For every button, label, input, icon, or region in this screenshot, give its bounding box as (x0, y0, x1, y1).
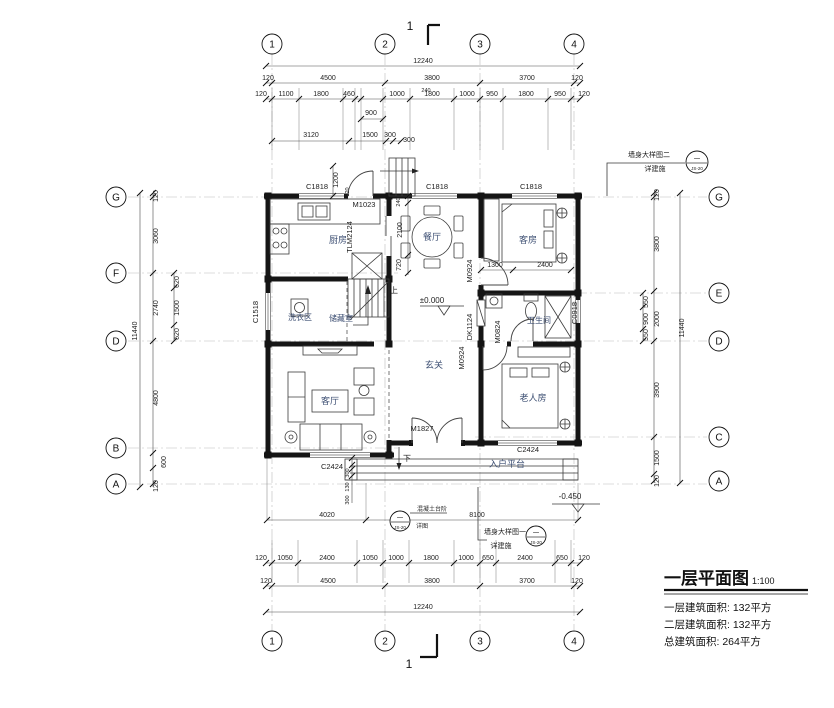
title-block: 一层平面图 1:100 一层建筑面积: 132平方 二层建筑面积: 132平方 … (664, 569, 808, 648)
detail-tag: JS-20 (394, 525, 406, 530)
area-line-2: 二层建筑面积: 132平方 (664, 618, 771, 631)
dim: 120 (255, 555, 267, 562)
dim: 1800 (313, 91, 329, 98)
axis-col-4-bottom: 4 (571, 637, 577, 648)
detail-tag: JS-20 (530, 540, 542, 545)
guest-room-set (484, 199, 567, 263)
dim: 2100 (397, 222, 404, 238)
dim: 1300 (487, 262, 503, 269)
dim: 1000 (388, 555, 404, 562)
axis-row-C-right: C (715, 433, 722, 444)
dim: 4800 (153, 390, 160, 406)
dim: 120 (571, 75, 583, 82)
dim: 8100 (469, 512, 485, 519)
dim: 620 (174, 276, 181, 288)
dim: 4500 (320, 578, 336, 585)
dim: 620 (174, 328, 181, 340)
level-minus: -0.450 (559, 492, 582, 501)
room-foyer: 玄关 (425, 359, 443, 370)
window-c1818-c (512, 193, 557, 199)
dim: 3800 (654, 236, 661, 252)
dim: 120 (345, 187, 351, 196)
axis-col-3-top: 3 (477, 40, 483, 51)
window-c1518 (265, 293, 271, 330)
level-zero: ±0.000 (420, 296, 445, 305)
dim: 120 (578, 555, 590, 562)
floor-plan-drawing: 1 1 1 2 3 4 1 2 3 4 G F D B A G E D C A … (0, 0, 834, 708)
axis-col-2-bottom: 2 (382, 637, 388, 648)
dim: 1000 (458, 555, 474, 562)
kitchen-fixtures (270, 199, 382, 279)
label-dk1124: DK1124 (465, 314, 474, 341)
dim: 3900 (654, 382, 661, 398)
label-c2424-b: C2424 (517, 445, 539, 454)
label-c1818-a: C1818 (306, 182, 328, 191)
note-wall-detail-2-line2: 详建施 (645, 164, 666, 173)
stair-down-label: 下 (403, 454, 411, 463)
dim: 2000 (654, 311, 661, 327)
dim: 3060 (153, 228, 160, 244)
dim: 120 (153, 190, 160, 202)
room-kitchen: 厨房 (329, 234, 347, 245)
dim: 1200 (333, 172, 340, 188)
label-m0924-b: M0924 (457, 347, 466, 370)
dim: 1500 (362, 132, 378, 139)
dim: 4020 (319, 512, 335, 519)
room-platform: 入户平台 (489, 458, 525, 469)
exterior-side-steps (380, 158, 419, 196)
dim: 120 (262, 75, 274, 82)
axis-col-1-top: 1 (269, 40, 275, 51)
section-number-bottom: 1 (406, 657, 413, 671)
dim: 4500 (320, 75, 336, 82)
dim: 950 (486, 91, 498, 98)
label-c1818-c: C1818 (520, 182, 542, 191)
dim: 120 (260, 578, 272, 585)
dim: 1000 (389, 91, 405, 98)
axis-row-F-left: F (113, 269, 119, 280)
stair-up-label: 上 (390, 286, 398, 295)
label-c0918: C0918 (570, 302, 579, 324)
dim: 3800 (424, 578, 440, 585)
axis-col-3-bottom: 3 (477, 637, 483, 648)
label-m1023: M1023 (353, 200, 376, 209)
axis-row-G-left: G (112, 193, 120, 204)
dim: 130 (345, 482, 351, 491)
dim: 120 (255, 91, 267, 98)
note-wall-detail-1-line2: 详建施 (491, 541, 512, 550)
elder-wardrobe (518, 347, 570, 357)
room-elder: 老人房 (519, 392, 546, 403)
dim: 1800 (423, 555, 439, 562)
window-c1818-b (412, 193, 457, 199)
dim: 1050 (277, 555, 293, 562)
dim: 2400 (537, 262, 553, 269)
label-m0824: M0824 (493, 321, 502, 344)
dim: 1050 (362, 555, 378, 562)
label-c2424-a: C2424 (321, 462, 343, 471)
dim: 1500 (174, 300, 181, 316)
axis-row-G-right: G (715, 193, 723, 204)
axis-col-1-bottom: 1 (269, 637, 275, 648)
room-living: 客厅 (321, 395, 339, 406)
area-line-1: 一层建筑面积: 132平方 (664, 601, 771, 614)
axis-col-2-top: 2 (382, 40, 388, 51)
dim: 120 (153, 480, 160, 492)
detail-tag: JS-20 (691, 166, 703, 171)
dim: 120 (578, 91, 590, 98)
room-laundry: 洗衣区 (288, 312, 312, 322)
dim: 120 (571, 578, 583, 585)
note-wall-detail-2-line1: 墙身大样图二 (628, 150, 670, 159)
window-c2424-living (310, 452, 370, 458)
dim: 900 (365, 110, 377, 117)
axis-bubbles (106, 34, 729, 651)
elder-room-set (502, 347, 570, 429)
dim: 1500 (654, 450, 661, 466)
dim: 1800 (424, 91, 440, 98)
dim: 3800 (424, 75, 440, 82)
axis-col-4-top: 4 (571, 40, 577, 51)
axis-row-E-right: E (716, 289, 723, 300)
room-dining: 餐厅 (423, 231, 441, 242)
note-wall-detail-1-line1: 墙身大样图一 (484, 527, 526, 536)
dim: 1000 (459, 91, 475, 98)
drawing-title: 一层平面图 (664, 569, 749, 588)
dim: 240 (396, 197, 402, 206)
floor-plan-svg: 1 1 1 2 3 4 1 2 3 4 G F D B A G E D C A … (0, 0, 834, 708)
dim: 3120 (303, 132, 319, 139)
dim: 300 (345, 495, 351, 504)
detail-tag: 一 (533, 530, 540, 537)
label-m1827: M1827 (411, 424, 434, 433)
dim: 3700 (519, 75, 535, 82)
dim: 2400 (517, 555, 533, 562)
dim: 550 (643, 296, 650, 308)
dim: 950 (554, 91, 566, 98)
label-m0924-a: M0924 (465, 260, 474, 283)
axis-row-A-right: A (716, 477, 723, 488)
dim: 2400 (319, 555, 335, 562)
drawing-scale: 1:100 (752, 576, 775, 586)
dim: 460 (343, 91, 355, 98)
note-steps-line1: 混凝土台阶 (417, 505, 447, 513)
room-bath: 卫生间 (527, 315, 551, 325)
axis-row-A-left: A (113, 480, 120, 491)
note-steps-line2: 详图 (416, 522, 428, 530)
dim-bottom-total: 12240 (413, 604, 433, 611)
dim: 120 (654, 475, 661, 487)
room-guest: 客房 (519, 234, 537, 245)
door-m1023 (348, 171, 373, 196)
room-storage: 储藏室 (329, 313, 353, 323)
dim: 120 (654, 189, 661, 201)
dim: 300 (345, 468, 351, 477)
dim: 3700 (519, 578, 535, 585)
detail-tag: 一 (397, 515, 404, 522)
guest-wardrobe (484, 199, 499, 261)
axis-row-D-left: D (112, 337, 119, 348)
axis-row-B-left: B (113, 444, 120, 455)
dim: 650 (556, 555, 568, 562)
dim: 720 (396, 259, 403, 271)
texts: 1 1 1 2 3 4 1 2 3 4 G F D B A G E D C A … (112, 19, 723, 671)
dim: 300 (403, 137, 415, 144)
window-c1818-a (299, 193, 344, 199)
detail-tag: 一 (694, 156, 701, 163)
section-number-top: 1 (407, 19, 414, 33)
dim: 900 (643, 313, 650, 325)
axis-center-lines (128, 54, 707, 630)
entry-steps (345, 447, 578, 480)
axis-row-D-right: D (715, 337, 722, 348)
label-c1818-b: C1818 (426, 182, 448, 191)
dim-top-total: 12240 (413, 58, 433, 65)
sliding-door-tlm2124 (386, 216, 391, 256)
dim: 300 (384, 132, 396, 139)
dim: 650 (482, 555, 494, 562)
dim-left-total: 11440 (132, 321, 139, 340)
dim: 550 (643, 329, 650, 341)
area-line-3: 总建筑面积: 264平方 (664, 635, 761, 648)
dim: 1100 (278, 91, 293, 98)
dim-right-total: 11440 (679, 318, 686, 337)
duct-dk1124 (477, 300, 485, 326)
dim: 1800 (518, 91, 534, 98)
dim: 600 (161, 456, 168, 468)
label-c1518: C1518 (251, 301, 260, 323)
dim: 2740 (153, 300, 160, 316)
